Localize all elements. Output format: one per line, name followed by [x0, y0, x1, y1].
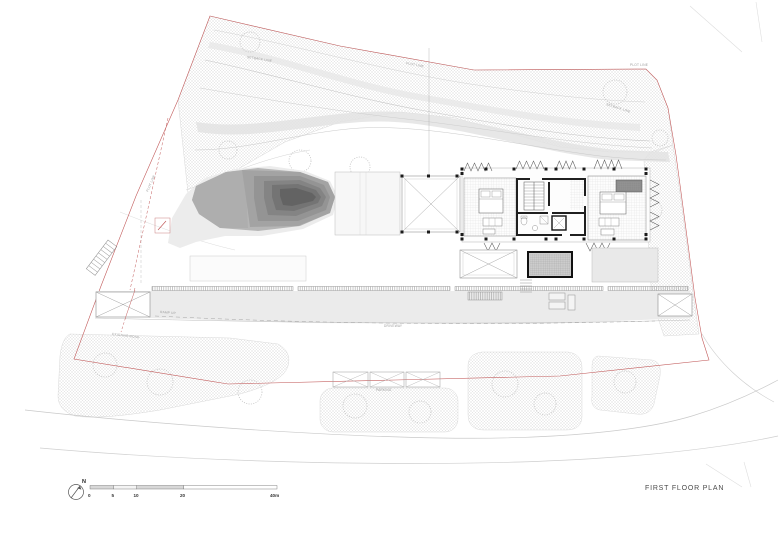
label-parking: PARKING: [376, 388, 392, 392]
label-driveway: DRIVEWAY: [384, 324, 403, 328]
scale-40: 40m: [270, 493, 279, 498]
west-court: [402, 176, 460, 232]
scale-0: 0: [88, 493, 91, 498]
plan-title: FIRST FLOOR PLAN: [645, 485, 724, 492]
label-plot-right: PLOT LINE: [630, 63, 648, 67]
north-arrow: N: [69, 479, 87, 500]
retaining-wall: [152, 287, 688, 291]
bedroom-east: [588, 176, 646, 240]
north-label: N: [82, 479, 86, 485]
pool: [528, 252, 572, 277]
south-court: [460, 250, 517, 278]
gate-box: [658, 294, 692, 316]
site-plan-sheet: SETBACK LINE PLOT LINE PLOT LINE SETBACK…: [0, 0, 780, 551]
plan-canvas: SETBACK LINE PLOT LINE PLOT LINE SETBACK…: [0, 0, 780, 551]
scale-bar: 0 5 10 20 40m: [88, 486, 279, 499]
scale-5: 5: [112, 493, 115, 498]
ramp: [96, 290, 150, 319]
west-deck: [335, 172, 400, 235]
scale-20: 20: [180, 493, 186, 498]
building: [335, 160, 659, 282]
upper-terrace: [190, 256, 306, 281]
east-terrace: [592, 248, 658, 282]
label-plot-left: PLOT LINE: [145, 174, 156, 192]
driveway: [95, 280, 692, 324]
drain-grill: [468, 292, 502, 300]
bedroom-west: [464, 178, 516, 236]
scale-10: 10: [134, 493, 140, 498]
